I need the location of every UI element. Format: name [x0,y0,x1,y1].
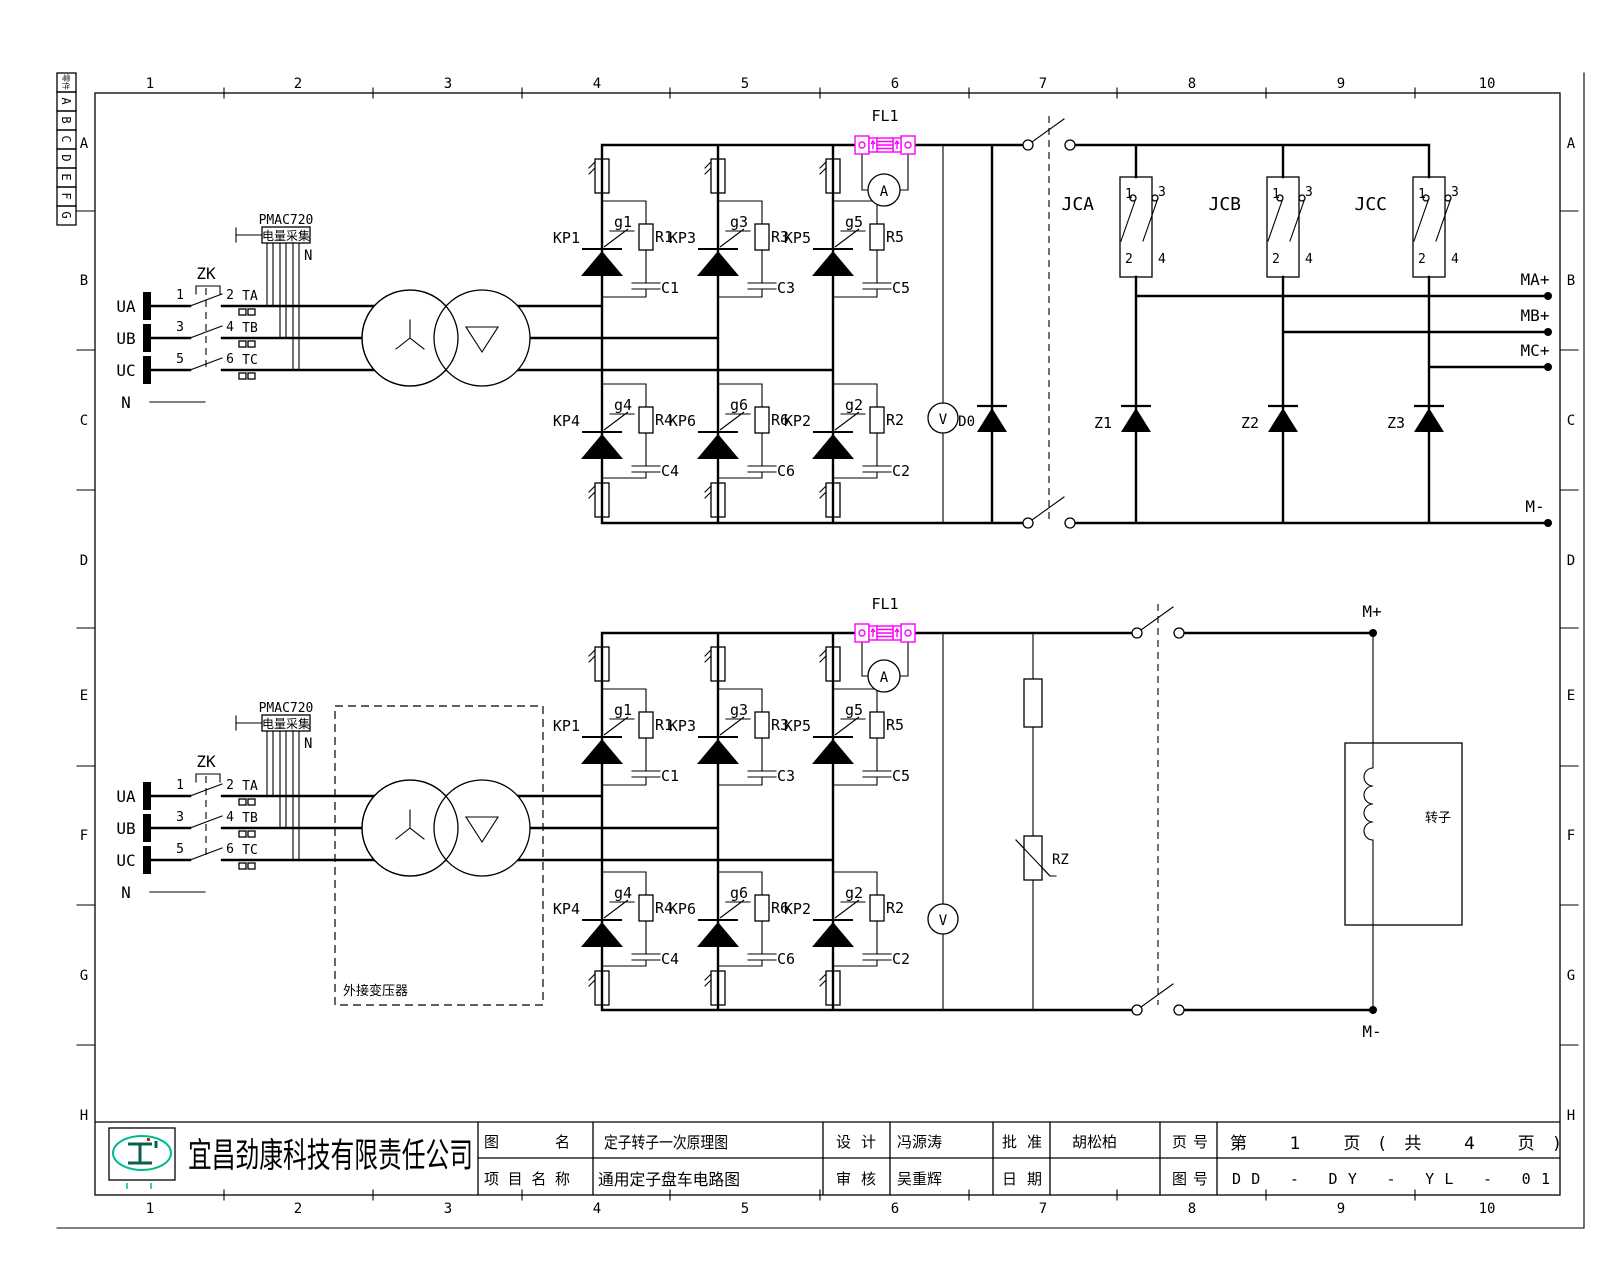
resistor [755,895,769,921]
terminal-ub [143,814,151,842]
voltmeter-letter: V [939,913,948,929]
row-label-left: E [80,688,88,704]
fuse [705,159,725,193]
thyristor-kp1 [581,717,628,764]
strip-label: B [59,116,73,123]
branch-fuse [1024,679,1042,727]
thy-label: KP3 [669,229,696,247]
col-label-top: 8 [1188,76,1196,92]
ct-label-tb: TB [242,811,258,826]
thy-label: KP5 [784,229,811,247]
col-label-top: 9 [1337,76,1345,92]
voltmeter-letter: V [939,412,948,428]
drawing-no-label: 图号 [1172,1170,1208,1188]
rotor-box [1345,743,1462,925]
transformer [362,290,530,386]
bottom-circuit: UA UB UC N ZK 1 2 3 4 5 6 TA TB TC PMAC7… [116,595,1462,1041]
thy-label: KP1 [553,229,580,247]
gate-label: g1 [614,701,632,719]
thy-label: KP6 [669,900,696,918]
contactor-label-jcc: JCC [1354,194,1387,215]
resistor [870,712,884,738]
diode-label-z1: Z1 [1094,414,1112,432]
terminal-ua [143,292,151,320]
contact-num: 2 [226,288,234,303]
ct-tc [239,863,255,869]
output-label-mb: MB+ [1521,306,1550,325]
contact-num: 2 [226,778,234,793]
cap-label: C2 [892,950,910,968]
fuse [589,647,609,681]
col-label-bottom: 9 [1337,1201,1345,1217]
strip-label: A [59,97,73,105]
design-label: 设计 [836,1133,876,1151]
reviewer-name: 吴重辉 [897,1170,942,1188]
neutral-label: N [121,883,131,902]
cap-label: C6 [777,950,795,968]
knife-switch-contact [1065,518,1075,528]
fuse [820,647,840,681]
thyristor-kp2 [812,900,859,947]
resistor [639,895,653,921]
jc-term: 3 [1158,185,1166,200]
ct-tc [239,373,255,379]
knife-switch-contact [1174,628,1184,638]
resistor [755,712,769,738]
contact-num: 4 [226,810,234,825]
jc-term: 2 [1125,252,1133,267]
knife-switch-contact [1065,140,1075,150]
drawing-name: 定子转子一次原理图 [604,1133,728,1152]
company-name: 宜昌劲康科技有限责任公司 [188,1136,473,1176]
date-label: 日期 [1002,1170,1042,1188]
contact-num: 1 [176,288,184,303]
shunt-label-fl1: FL1 [871,595,898,613]
cap-label: C4 [661,462,679,480]
gate-label: g3 [730,701,748,719]
resistor [755,224,769,250]
rotor-coil [1364,768,1373,840]
logo-glyph [128,1141,156,1163]
fuse [705,647,725,681]
logo-ticks [127,1183,151,1189]
res-label: R5 [886,716,904,734]
logo-ellipse [113,1136,171,1170]
project-name: 通用定子盘车电路图 [598,1170,740,1189]
ct-tb [239,831,255,837]
phase-label-ub: UB [116,329,135,348]
col-label-top: 2 [294,76,302,92]
phase-label-uc: UC [116,361,135,380]
resistor [870,407,884,433]
contactor-label-jca: JCA [1061,194,1094,215]
resistor [639,712,653,738]
col-label-bottom: 6 [891,1201,899,1217]
corner-strip: 零件 A B C D E F G [57,73,76,225]
contact-num: 6 [226,352,234,367]
knife-switch-contact [1023,518,1033,528]
fuse [820,971,840,1005]
wiring-bold [152,145,1548,523]
col-label-top: 5 [741,76,749,92]
ct-label-tc: TC [242,843,258,858]
terminal-mc [1544,363,1552,371]
output-label-mc: MC+ [1521,341,1550,360]
diode-label-z3: Z3 [1387,414,1405,432]
thy-label: KP6 [669,412,696,430]
gate-label: g4 [614,396,632,414]
strip-label: D [59,154,73,161]
phase-label-uc: UC [116,851,135,870]
diode-z3 [1414,406,1444,432]
contact-num: 6 [226,842,234,857]
gate-label: g3 [730,213,748,231]
rotor-label: 转子 [1425,811,1451,826]
jc-term: 2 [1272,252,1280,267]
output-label-mneg: M- [1362,1022,1381,1041]
row-label-left: F [80,828,88,844]
diode-z1 [1121,406,1151,432]
gate-label: g2 [845,884,863,902]
col-label-top: 1 [146,76,154,92]
res-label: R5 [886,228,904,246]
jc-term: 4 [1451,252,1459,267]
neutral-label: N [121,393,131,412]
cap-label: C6 [777,462,795,480]
row-label-right: B [1567,273,1575,289]
strip-label: E [59,173,73,180]
res-label: R2 [886,411,904,429]
varistor-label-rz: RZ [1052,852,1069,868]
gate-label: g4 [614,884,632,902]
wiring-thin [150,119,1450,523]
row-label-left: C [80,413,88,429]
phase-label-ub: UB [116,819,135,838]
knife-switch-contact [1174,1005,1184,1015]
gate-label: g2 [845,396,863,414]
terminal-ub [143,324,151,352]
approver-name: 胡松柏 [1072,1133,1117,1151]
row-label-right: A [1567,136,1576,152]
fuse [820,483,840,517]
review-label: 审核 [836,1170,876,1188]
col-label-bottom: 4 [593,1201,601,1217]
breaker-label-zk: ZK [196,752,216,771]
col-label-bottom: 10 [1479,1201,1496,1217]
contact-num: 5 [176,842,184,857]
schematic-sheet: 零件 A B C D E F G 1 2 3 4 5 6 7 8 9 10 1 … [0,0,1600,1280]
breaker-label-zk: ZK [196,264,216,283]
output-label-ma: MA+ [1521,270,1550,289]
jc-term: 4 [1305,252,1313,267]
resistor [870,895,884,921]
pmu-model: PMAC720 [259,213,314,228]
jc-term: 1 [1418,187,1426,202]
resistor [870,224,884,250]
cap-label: C4 [661,950,679,968]
jc-term: 1 [1125,187,1133,202]
phase-label-ua: UA [116,297,136,316]
row-label-left: H [80,1108,88,1124]
jc-term: 3 [1305,185,1313,200]
strip-label: C [59,135,73,142]
thyristor-kp3 [697,717,744,764]
diode-label-d0: D0 [958,414,975,430]
phase-label-ua: UA [116,787,136,806]
project-name-label: 项目名称 [484,1170,570,1188]
cap-label: C3 [777,767,795,785]
ct-label-ta: TA [242,779,258,794]
row-label-left: B [80,273,88,289]
thy-label: KP1 [553,717,580,735]
company-logo [109,1128,175,1189]
knife-switch-contact [1132,628,1142,638]
wiring-thin [150,607,1373,1010]
gate-label: g1 [614,213,632,231]
ammeter-letter: A [880,184,889,200]
strip-label: F [59,192,73,199]
cap-label: C1 [661,279,679,297]
shunt-fl1 [855,624,915,642]
thy-label: KP3 [669,717,696,735]
thy-label: KP4 [553,412,580,430]
top-circuit: UA UB UC N ZK 1 2 3 4 5 6 TA TB TC PMAC7… [116,107,1552,528]
contactor-label-jcb: JCB [1208,194,1241,215]
zone-ticks [77,88,1578,1200]
ct-ta [239,799,255,805]
row-label-left: D [80,553,88,569]
thyristor-kp4 [581,900,628,947]
col-label-bottom: 2 [294,1201,302,1217]
fuse [705,483,725,517]
row-label-right: H [1567,1108,1575,1124]
cap-label: C5 [892,279,910,297]
col-label-top: 10 [1479,76,1496,92]
title-block: 宜昌劲康科技有限责任公司 图名 定子转子一次原理图 项目名称 通用定子盘车电路图… [95,1122,1560,1195]
strip-label: G [59,211,73,218]
pmu-model: PMAC720 [259,701,314,716]
shunt-fl1 [855,136,915,154]
gang-links [206,604,1158,1005]
col-label-bottom: 8 [1188,1201,1196,1217]
fuse [705,971,725,1005]
thyristor-kp5 [812,717,859,764]
fuse [820,159,840,193]
thyristor-kp6 [697,412,744,459]
diode-label-z2: Z2 [1241,414,1259,432]
col-label-bottom: 3 [444,1201,452,1217]
fuse [589,483,609,517]
pmu-name: 电量采集 [262,716,310,731]
thy-label: KP2 [784,900,811,918]
col-label-top: 4 [593,76,601,92]
row-label-right: E [1567,688,1575,704]
ct-label-tb: TB [242,321,258,336]
pmu-name: 电量采集 [262,228,310,243]
row-label-left: G [80,968,88,984]
terminal-uc [143,356,151,384]
terminal-ma [1544,292,1552,300]
col-label-top: 6 [891,76,899,92]
contact-num: 5 [176,352,184,367]
resistor [755,407,769,433]
drawing-name-label: 图名 [484,1133,570,1151]
jc-term: 3 [1451,185,1459,200]
output-label-mneg: M- [1525,497,1544,516]
resistor [639,407,653,433]
row-label-left: A [80,136,89,152]
thyristor-kp2 [812,412,859,459]
cap-label: C5 [892,767,910,785]
ct-tb [239,341,255,347]
gate-label: g6 [730,396,748,414]
transformer [362,780,530,876]
res-label: R2 [886,899,904,917]
contact-num: 3 [176,320,184,335]
diode-z2 [1268,406,1298,432]
col-label-top: 3 [444,76,452,92]
fuse [589,159,609,193]
thyristor-kp6 [697,900,744,947]
cap-label: C3 [777,279,795,297]
gate-label: g6 [730,884,748,902]
thyristor-kp4 [581,412,628,459]
contact-num: 3 [176,810,184,825]
terminal-mneg [1369,1006,1377,1014]
cap-label: C1 [661,767,679,785]
terminal-mpos [1369,629,1377,637]
row-label-right: F [1567,828,1575,844]
ext-transformer-label: 外接变压器 [343,983,408,999]
jc-term: 4 [1158,252,1166,267]
col-label-bottom: 1 [146,1201,154,1217]
ammeter-letter: A [880,670,889,686]
thyristor-kp5 [812,229,859,276]
drawing-no: DD - DY - YL - 01 [1232,1170,1550,1188]
terminal-uc [143,846,151,874]
terminal-ua [143,782,151,810]
logo-accent [147,1138,150,1141]
cap-label: C2 [892,462,910,480]
knife-switch-contact [1132,1005,1142,1015]
ct-ta [239,309,255,315]
resistor [639,224,653,250]
fuse [589,971,609,1005]
contact-num: 1 [176,778,184,793]
row-label-right: G [1567,968,1575,984]
shunt-label-fl1: FL1 [871,107,898,125]
col-label-bottom: 5 [741,1201,749,1217]
terminal-mneg [1544,519,1552,527]
thy-label: KP2 [784,412,811,430]
thyristor-kp1 [581,229,628,276]
gate-label: g5 [845,701,863,719]
col-label-bottom: 7 [1039,1201,1047,1217]
pmu-n: N [304,736,312,752]
jc-term: 2 [1418,252,1426,267]
output-label-mpos: M+ [1362,602,1381,621]
freewheel-diode-d0 [977,406,1007,432]
pmu-n: N [304,248,312,264]
thy-label: KP5 [784,717,811,735]
thyristor-kp3 [697,229,744,276]
ct-label-tc: TC [242,353,258,368]
contact-num: 4 [226,320,234,335]
thy-label: KP4 [553,900,580,918]
page-value: 第 1 页(共 4 页) [1230,1134,1560,1154]
approve-label: 批准 [1002,1133,1042,1151]
gang-links [206,116,1049,520]
terminal-mb [1544,328,1552,336]
col-label-top: 7 [1039,76,1047,92]
ct-label-ta: TA [242,289,258,304]
knife-switch-contact [1023,140,1033,150]
designer-name: 冯源涛 [897,1133,942,1151]
row-label-right: C [1567,413,1575,429]
strip-label: 零件 [61,74,71,90]
row-label-right: D [1567,553,1575,569]
gate-label: g5 [845,213,863,231]
jc-term: 1 [1272,187,1280,202]
page-label: 页号 [1172,1133,1208,1151]
